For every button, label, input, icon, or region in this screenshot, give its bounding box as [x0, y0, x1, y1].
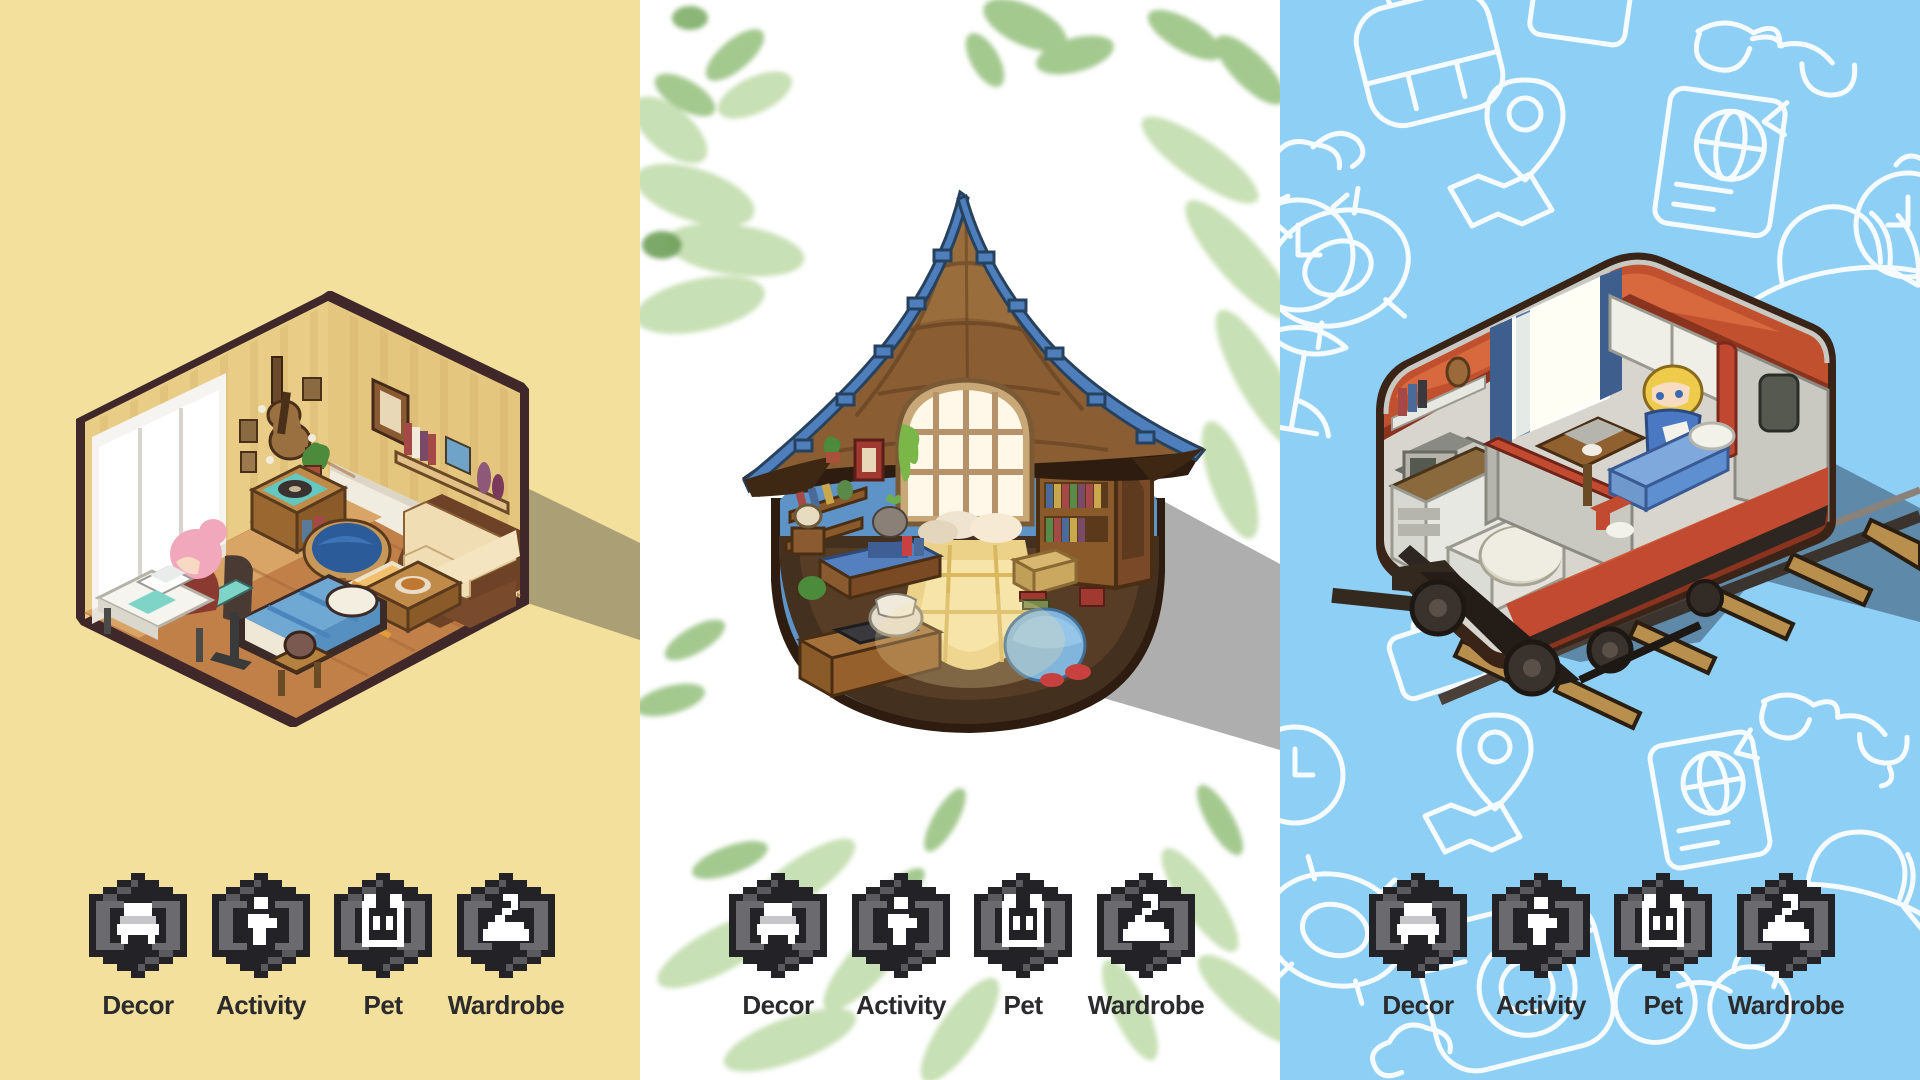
- svg-text:Decor: Decor: [742, 990, 814, 1020]
- svg-text:Activity: Activity: [1496, 990, 1587, 1020]
- svg-text:Activity: Activity: [856, 990, 947, 1020]
- svg-text:Wardrobe: Wardrobe: [1088, 990, 1204, 1020]
- svg-text:Wardrobe: Wardrobe: [448, 990, 564, 1020]
- svg-text:Decor: Decor: [102, 990, 174, 1020]
- svg-text:Pet: Pet: [1004, 990, 1044, 1020]
- svg-text:Activity: Activity: [216, 990, 307, 1020]
- svg-text:Pet: Pet: [1644, 990, 1684, 1020]
- svg-text:Wardrobe: Wardrobe: [1728, 990, 1844, 1020]
- svg-text:Pet: Pet: [364, 990, 404, 1020]
- svg-text:Decor: Decor: [1382, 990, 1454, 1020]
